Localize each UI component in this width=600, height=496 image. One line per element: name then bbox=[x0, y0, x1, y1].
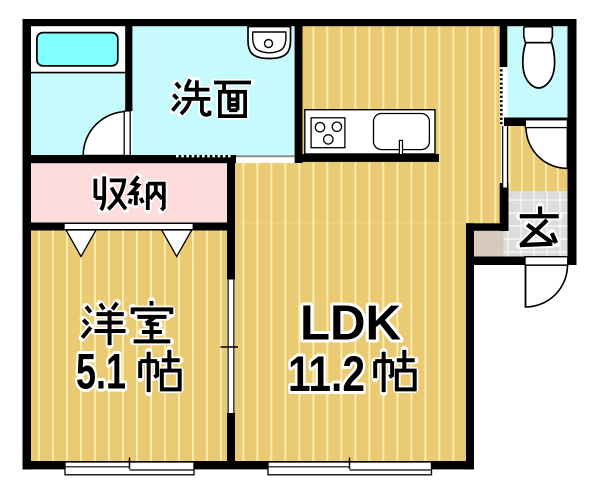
svg-text:5.1: 5.1 bbox=[76, 344, 126, 400]
svg-text:11.2: 11.2 bbox=[288, 346, 365, 402]
svg-text:LDK: LDK bbox=[300, 296, 401, 351]
